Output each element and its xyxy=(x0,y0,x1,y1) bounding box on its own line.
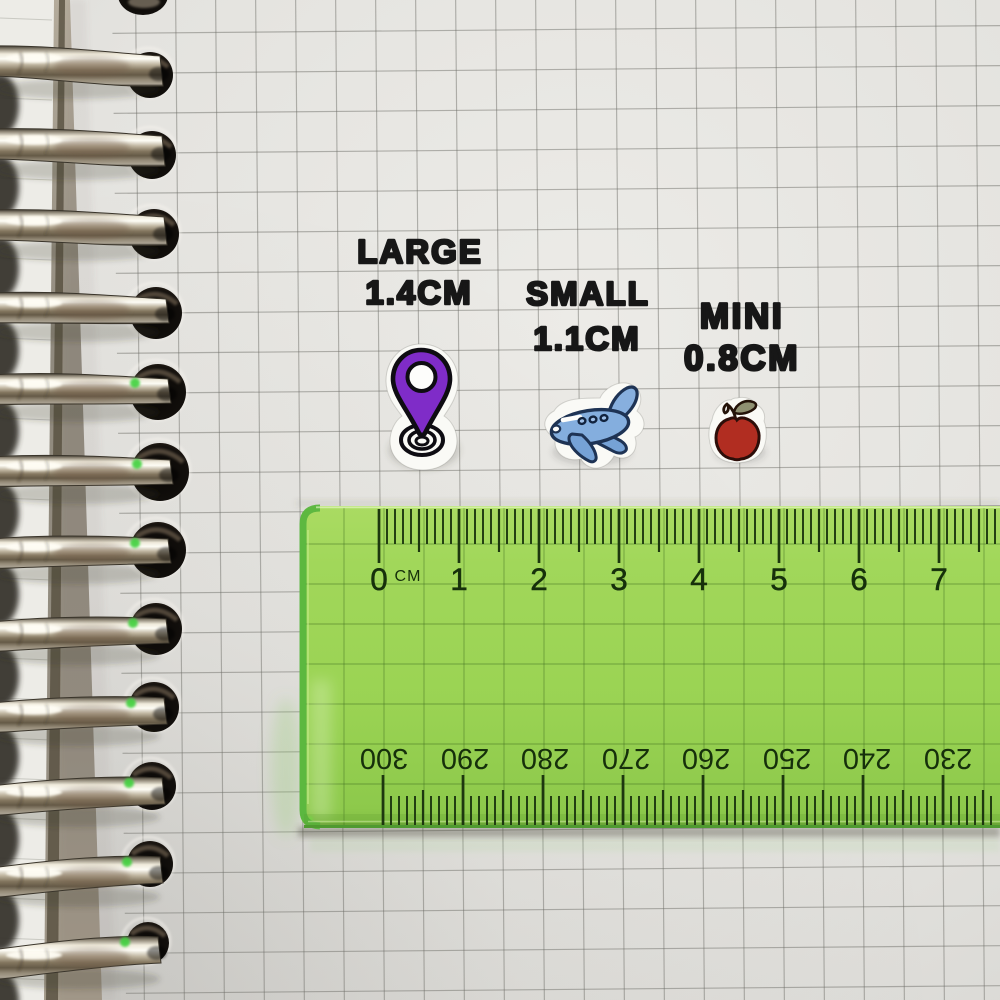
svg-text:5: 5 xyxy=(770,561,788,597)
svg-text:230: 230 xyxy=(924,742,972,774)
svg-text:LARGE: LARGE xyxy=(357,233,483,270)
svg-text:MINI: MINI xyxy=(700,297,784,336)
svg-text:4: 4 xyxy=(690,561,708,597)
svg-text:280: 280 xyxy=(521,742,569,774)
svg-text:CM: CM xyxy=(395,568,422,585)
svg-text:270: 270 xyxy=(602,742,650,774)
svg-text:3: 3 xyxy=(610,561,628,597)
svg-text:290: 290 xyxy=(441,742,489,774)
svg-text:260: 260 xyxy=(682,742,730,774)
svg-text:0: 0 xyxy=(370,561,388,597)
svg-text:2: 2 xyxy=(530,561,548,597)
svg-text:7: 7 xyxy=(930,561,948,597)
svg-text:0.8CM: 0.8CM xyxy=(684,339,800,378)
svg-text:240: 240 xyxy=(843,742,891,774)
svg-text:250: 250 xyxy=(763,742,811,774)
svg-text:6: 6 xyxy=(850,561,868,597)
svg-text:1.4CM: 1.4CM xyxy=(365,274,472,311)
svg-text:SMALL: SMALL xyxy=(526,275,650,312)
svg-text:300: 300 xyxy=(360,742,408,774)
svg-text:1.1CM: 1.1CM xyxy=(533,320,640,357)
svg-text:1: 1 xyxy=(450,561,468,597)
